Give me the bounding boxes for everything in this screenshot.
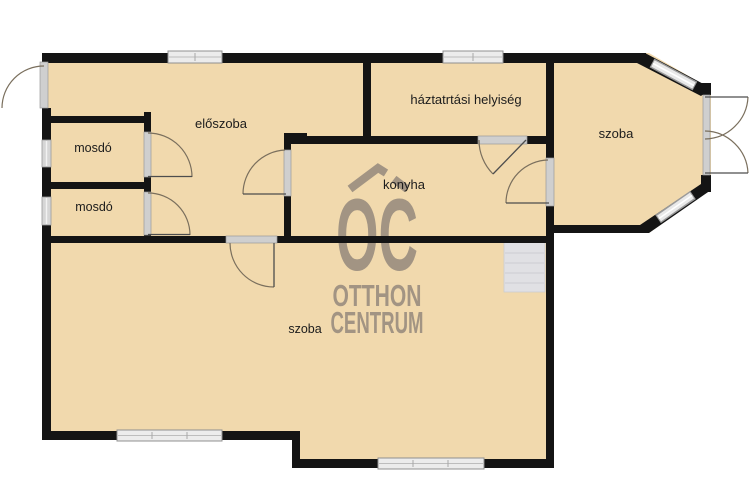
wall-bay-right-bottom bbox=[701, 175, 711, 192]
sill-haztartasi-door bbox=[478, 136, 527, 144]
room-label-konyha: konyha bbox=[383, 177, 426, 192]
window-bottom-right bbox=[378, 458, 484, 469]
window-top-1 bbox=[168, 51, 222, 63]
wall-bottom-right-b bbox=[484, 459, 554, 468]
sill-large-room-door bbox=[226, 236, 277, 243]
wall-left-b bbox=[42, 108, 51, 140]
wall-main-horizontal-b bbox=[277, 236, 554, 243]
wall-bottom-left-b bbox=[222, 431, 300, 440]
wall-kitchen-top-a bbox=[284, 136, 478, 144]
room-label-haztartasi: háztatrtási helyiség bbox=[410, 92, 521, 107]
sill-bay-french-doors bbox=[703, 95, 710, 175]
wall-haztartasi-left bbox=[363, 53, 371, 144]
wall-bottom-left-a bbox=[42, 431, 117, 440]
room-label-eloszoba: előszoba bbox=[195, 116, 248, 131]
sill-mosdo-lower-door bbox=[144, 192, 151, 235]
wall-bay-right-top bbox=[701, 83, 711, 95]
otthon-centrum-watermark: OC OTTHON CENTRUM bbox=[331, 168, 424, 340]
entrance-door-leaf bbox=[40, 62, 48, 108]
floor-plan: OC OTTHON CENTRUM bbox=[0, 0, 756, 500]
wall-left-a bbox=[42, 53, 51, 62]
wall-left-d bbox=[42, 225, 51, 440]
wall-main-horizontal-a bbox=[42, 236, 226, 243]
wall-mosdo-divider bbox=[42, 182, 151, 189]
bay-door-bottom-arc bbox=[705, 131, 748, 173]
window-left-2 bbox=[42, 197, 51, 225]
wall-right-large-room bbox=[546, 225, 554, 468]
room-label-szoba-bay: szoba bbox=[599, 126, 634, 141]
room-label-mosdo-upper: mosdó bbox=[74, 141, 112, 155]
watermark-name-bottom: CENTRUM bbox=[331, 305, 424, 340]
wall-mosdo-right-b bbox=[144, 177, 151, 192]
sill-kitchen-door bbox=[284, 150, 291, 196]
watermark-monogram: OC bbox=[336, 178, 418, 292]
wall-top bbox=[43, 53, 646, 63]
wall-konyha-bay-lower bbox=[546, 206, 554, 240]
wall-bottom-right-a bbox=[292, 459, 378, 468]
sill-mosdo-upper-door bbox=[144, 132, 151, 177]
window-top-2 bbox=[443, 51, 503, 63]
wall-mosdo-right-a bbox=[144, 112, 151, 132]
window-left-1 bbox=[42, 140, 51, 167]
wall-mosdo-top bbox=[42, 116, 151, 123]
room-label-mosdo-lower: mosdó bbox=[75, 200, 113, 214]
wall-konyha-bay bbox=[546, 53, 554, 158]
window-bottom-left bbox=[117, 430, 222, 441]
room-label-szoba-large: szoba bbox=[288, 322, 321, 336]
bay-door-top-arc bbox=[705, 97, 748, 139]
entrance-door-arc bbox=[2, 66, 44, 108]
wall-kitchen-left-c bbox=[284, 196, 291, 243]
stairs-block bbox=[504, 242, 545, 292]
sill-konyha-bay-door bbox=[546, 158, 554, 206]
wall-bay-bottom bbox=[546, 225, 649, 233]
